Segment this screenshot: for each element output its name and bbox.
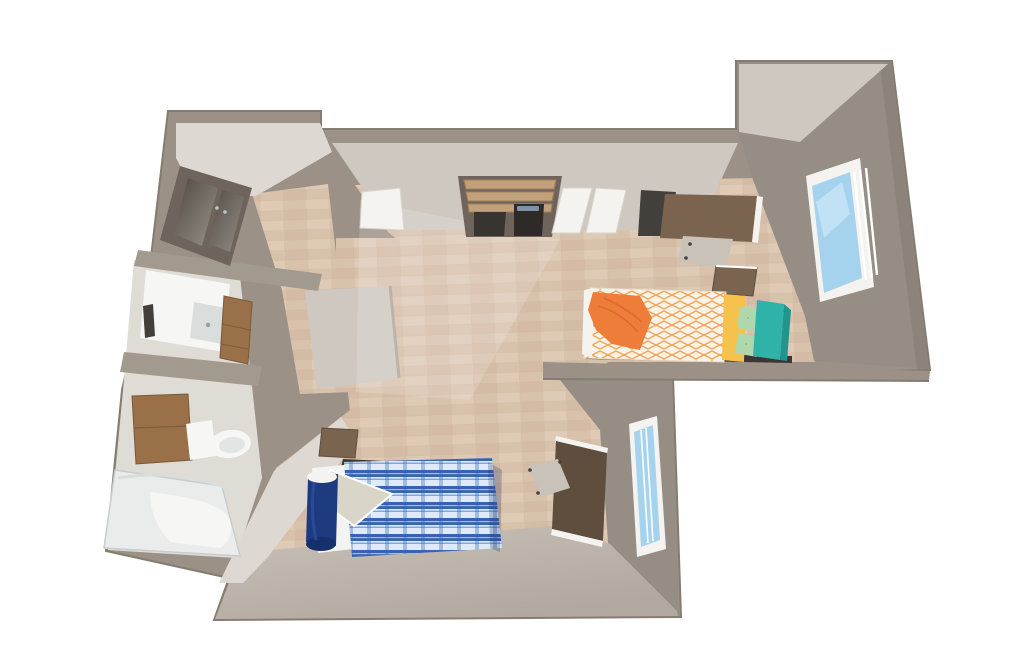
duvet-drape-shadow <box>488 462 502 552</box>
chair-caster <box>528 468 532 472</box>
open-room-door <box>360 188 404 230</box>
sink-drain <box>206 323 210 327</box>
closet-shelves-alcove <box>458 176 562 237</box>
chair-caster <box>558 460 562 464</box>
shelf <box>466 192 554 201</box>
teal-headboard <box>753 300 784 360</box>
cushion-dot <box>745 343 747 345</box>
towel <box>143 304 155 338</box>
bolster-bottom <box>306 537 336 551</box>
cushion-dot <box>747 317 749 319</box>
chair-caster <box>536 491 540 495</box>
side-cabinet <box>220 296 252 364</box>
chair-caster <box>684 256 688 260</box>
chair-caster <box>688 242 692 246</box>
medicine-cabinet <box>132 394 192 464</box>
navy-bolster <box>306 474 338 546</box>
desk-1-top <box>660 194 757 242</box>
bolster-end <box>307 471 337 483</box>
appliance-control-panel <box>517 206 539 211</box>
floorplan-render <box>0 0 1024 662</box>
door-handle-dot <box>223 210 227 214</box>
shelf <box>464 180 556 189</box>
door-handle-dot <box>215 206 219 210</box>
bed-2 <box>306 458 502 557</box>
nightstand-2 <box>319 428 358 458</box>
floorplan-page <box>0 0 1024 662</box>
dresser <box>474 212 506 236</box>
